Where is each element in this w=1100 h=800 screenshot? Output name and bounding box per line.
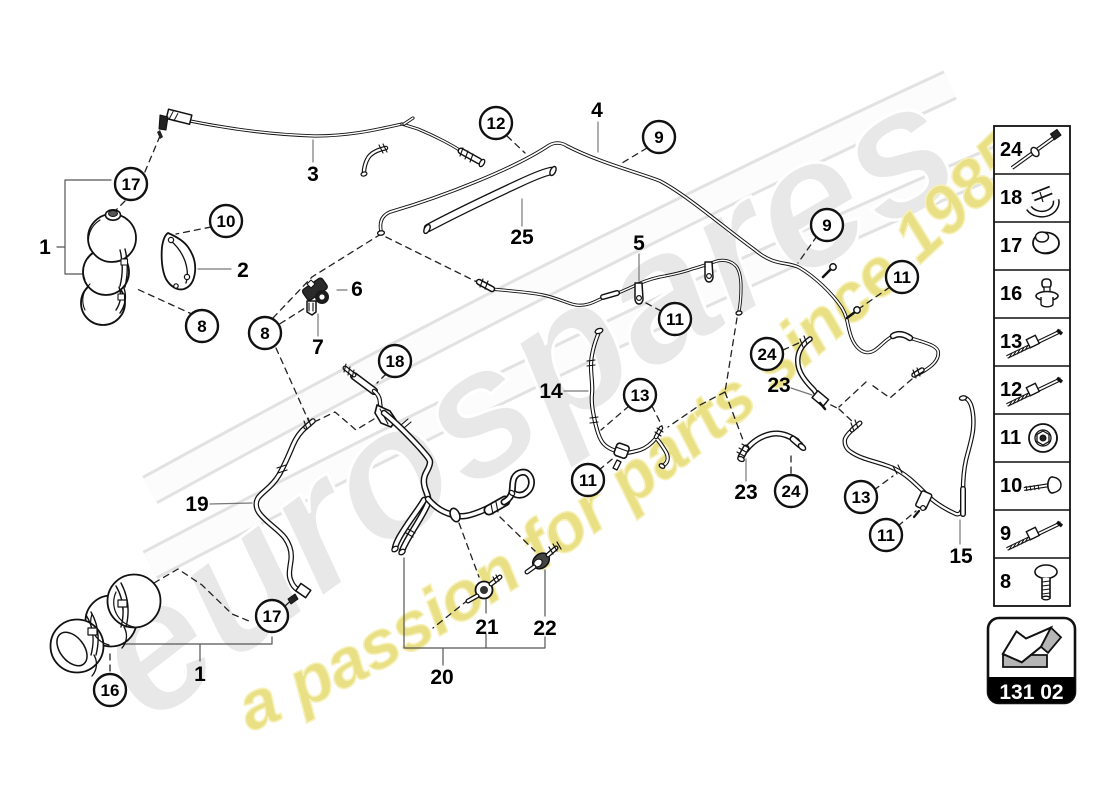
svg-text:24: 24 xyxy=(758,345,777,364)
svg-text:13: 13 xyxy=(852,488,871,507)
svg-text:10: 10 xyxy=(217,212,236,231)
svg-text:11: 11 xyxy=(893,268,911,287)
svg-text:25: 25 xyxy=(510,226,534,249)
svg-text:9: 9 xyxy=(1000,523,1011,545)
svg-text:6: 6 xyxy=(351,278,363,301)
svg-text:9: 9 xyxy=(654,128,663,147)
svg-text:14: 14 xyxy=(539,380,563,403)
svg-text:13: 13 xyxy=(631,386,650,405)
svg-text:5: 5 xyxy=(633,232,645,255)
svg-text:10: 10 xyxy=(1000,475,1022,497)
svg-text:131 02: 131 02 xyxy=(999,681,1063,704)
svg-text:18: 18 xyxy=(386,352,405,371)
svg-text:19: 19 xyxy=(185,493,208,516)
svg-text:21: 21 xyxy=(475,616,499,639)
svg-text:24: 24 xyxy=(1000,139,1023,161)
svg-text:17: 17 xyxy=(263,607,282,626)
svg-text:11: 11 xyxy=(1000,427,1021,449)
svg-text:2: 2 xyxy=(237,259,249,282)
svg-text:3: 3 xyxy=(307,163,319,186)
svg-text:9: 9 xyxy=(822,216,831,235)
svg-text:22: 22 xyxy=(533,617,556,640)
svg-text:11: 11 xyxy=(666,310,684,329)
svg-text:8: 8 xyxy=(197,317,206,336)
svg-text:23: 23 xyxy=(734,481,757,504)
svg-text:8: 8 xyxy=(1000,571,1011,593)
svg-text:11: 11 xyxy=(579,471,597,490)
svg-text:20: 20 xyxy=(430,666,453,689)
svg-text:15: 15 xyxy=(949,545,973,568)
svg-text:1: 1 xyxy=(39,236,51,259)
svg-text:16: 16 xyxy=(1000,283,1022,305)
svg-text:1: 1 xyxy=(194,663,206,686)
svg-text:4: 4 xyxy=(591,99,603,122)
svg-text:23: 23 xyxy=(767,374,790,397)
svg-text:18: 18 xyxy=(1000,187,1022,209)
svg-text:24: 24 xyxy=(782,482,801,501)
svg-text:17: 17 xyxy=(122,175,141,194)
svg-text:16: 16 xyxy=(101,681,120,700)
svg-text:8: 8 xyxy=(260,324,269,343)
svg-text:17: 17 xyxy=(1000,235,1022,257)
svg-text:12: 12 xyxy=(487,114,506,133)
svg-text:11: 11 xyxy=(877,526,895,545)
svg-text:7: 7 xyxy=(312,336,324,359)
